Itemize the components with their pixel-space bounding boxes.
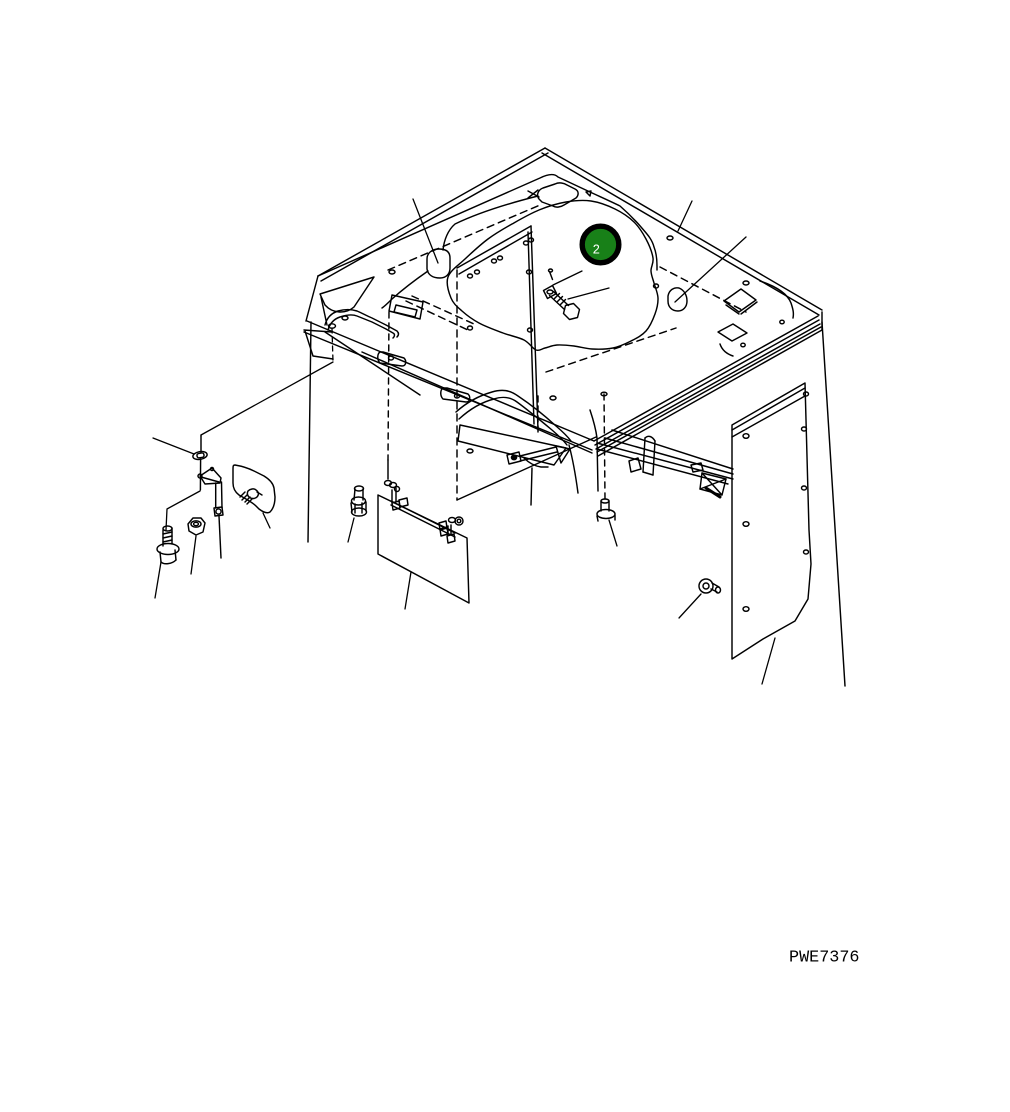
svg-text:2: 2	[593, 243, 601, 259]
svg-text:PWE7376: PWE7376	[789, 949, 860, 968]
